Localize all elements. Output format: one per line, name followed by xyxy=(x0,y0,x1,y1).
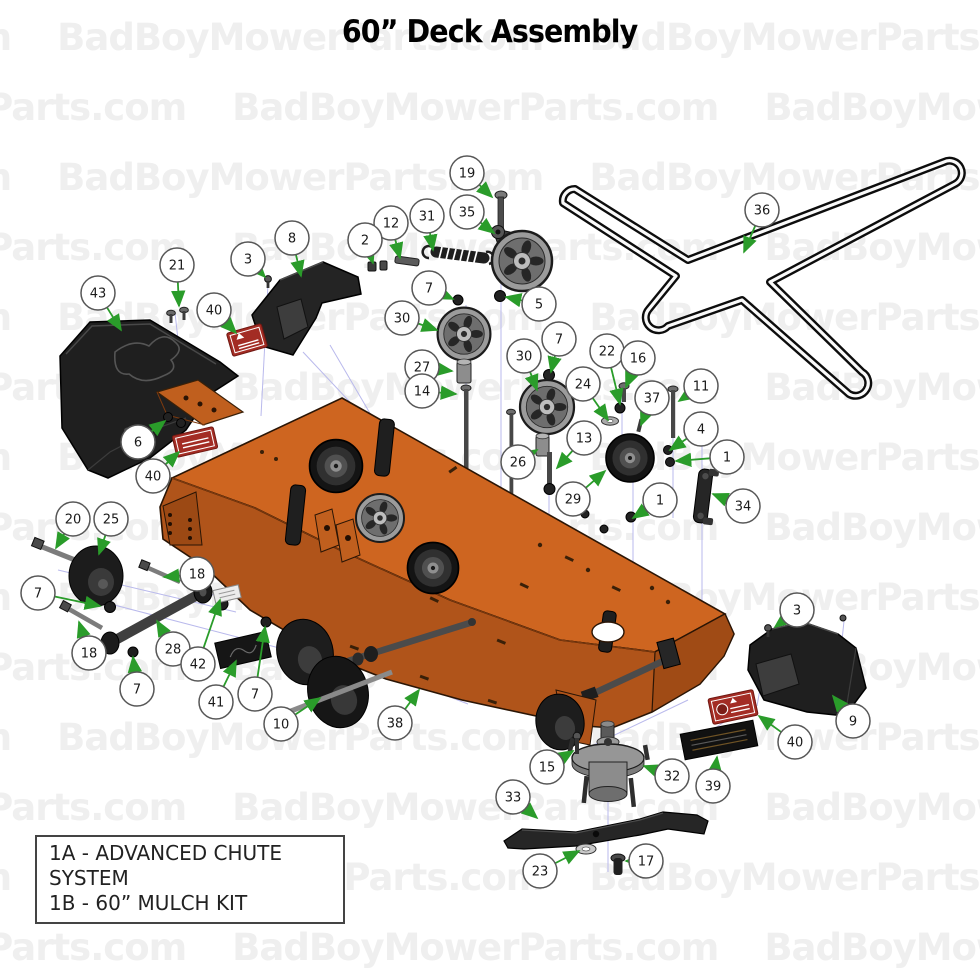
deck-spindle-pulley xyxy=(356,494,404,542)
leader-arrow xyxy=(557,451,573,468)
svg-text:30: 30 xyxy=(394,312,411,327)
svg-text:40: 40 xyxy=(787,736,804,751)
svg-text:37: 37 xyxy=(644,392,661,407)
leader-arrow xyxy=(644,766,656,770)
svg-text:33: 33 xyxy=(505,791,522,806)
screw-21 xyxy=(167,307,189,323)
legend-box: 1A - ADVANCED CHUTE SYSTEM 1B - 60” MULC… xyxy=(35,835,345,924)
leader-arrow xyxy=(439,392,456,394)
svg-text:17: 17 xyxy=(638,855,655,870)
leader-arrow xyxy=(551,356,555,372)
callout-balloon-25: 25 xyxy=(94,502,128,536)
leader-arrow xyxy=(506,297,522,300)
leader-arrow xyxy=(178,282,179,306)
svg-text:23: 23 xyxy=(532,865,549,880)
svg-text:39: 39 xyxy=(705,780,722,795)
callout-balloon-16: 16 xyxy=(621,341,655,375)
svg-text:7: 7 xyxy=(133,683,141,698)
callout-balloon-4: 4 xyxy=(684,412,718,446)
leader-arrow xyxy=(713,494,727,500)
callout-balloon-33: 33 xyxy=(496,780,530,814)
callout-balloon-40: 40 xyxy=(778,725,812,759)
svg-text:28: 28 xyxy=(165,643,182,658)
callout-balloon-7: 7 xyxy=(21,576,55,610)
leader-arrow xyxy=(418,324,437,330)
nut-7 xyxy=(128,647,138,657)
callout-balloon-10: 10 xyxy=(264,707,298,741)
callout-balloon-11: 11 xyxy=(684,369,718,403)
svg-text:18: 18 xyxy=(189,568,206,583)
leader-arrow xyxy=(405,690,419,709)
svg-text:10: 10 xyxy=(273,718,290,733)
deck-spindle-pulley xyxy=(408,543,459,594)
svg-text:13: 13 xyxy=(576,432,593,447)
nut-5 xyxy=(495,291,506,302)
callout-balloon-1: 1 xyxy=(643,483,677,517)
callout-balloon-1: 1 xyxy=(710,440,744,474)
callout-balloon-20: 20 xyxy=(56,502,90,536)
leader-arrow xyxy=(226,322,236,333)
callout-balloon-42: 42 xyxy=(181,647,215,681)
callout-balloon-43: 43 xyxy=(81,276,115,310)
svg-text:7: 7 xyxy=(251,688,259,703)
leader-arrow xyxy=(444,295,453,299)
svg-text:29: 29 xyxy=(565,493,582,508)
callout-balloon-3: 3 xyxy=(231,242,265,276)
svg-text:9: 9 xyxy=(849,715,857,730)
svg-text:38: 38 xyxy=(387,717,404,732)
deck-wheel-25 xyxy=(69,546,123,606)
callout-balloon-6: 6 xyxy=(121,425,155,459)
callout-balloon-35: 35 xyxy=(450,195,484,229)
spindle-blade-group xyxy=(504,721,708,875)
callout-balloon-30: 30 xyxy=(507,339,541,373)
bushing xyxy=(105,602,116,613)
svg-text:11: 11 xyxy=(693,380,710,395)
callout-balloon-17: 17 xyxy=(629,844,663,878)
callout-balloon-7: 7 xyxy=(238,677,272,711)
callout-balloon-9: 9 xyxy=(836,704,870,738)
callout-balloon-3: 3 xyxy=(780,593,814,627)
svg-text:21: 21 xyxy=(169,259,186,274)
svg-text:31: 31 xyxy=(419,210,436,225)
callout-balloon-36: 36 xyxy=(745,193,779,227)
bolt-11 xyxy=(668,386,678,438)
nut-1 xyxy=(666,458,675,467)
decal-39 xyxy=(680,720,758,760)
blade-bolt-17 xyxy=(611,854,625,875)
svg-text:40: 40 xyxy=(145,470,162,485)
bolt-13 xyxy=(544,452,555,495)
leader-arrow xyxy=(759,716,781,732)
callout-balloon-29: 29 xyxy=(556,482,590,516)
callout-balloon-24: 24 xyxy=(566,367,600,401)
leader-arrow xyxy=(157,621,165,634)
svg-text:36: 36 xyxy=(754,204,771,219)
leader-arrow xyxy=(586,471,605,488)
callout-balloon-40: 40 xyxy=(136,459,170,493)
svg-text:25: 25 xyxy=(103,513,120,528)
leader-arrow xyxy=(133,657,135,672)
svg-text:41: 41 xyxy=(208,696,225,711)
callout-balloon-34: 34 xyxy=(726,489,760,523)
leader-arrow xyxy=(79,622,84,637)
nut-7 xyxy=(544,370,555,381)
bolt-14 xyxy=(461,385,471,469)
upper-chute xyxy=(252,262,361,355)
svg-text:16: 16 xyxy=(630,352,647,367)
svg-text:35: 35 xyxy=(459,206,476,221)
legend-item-1a: 1A - ADVANCED CHUTE SYSTEM xyxy=(49,841,343,891)
svg-text:32: 32 xyxy=(664,770,681,785)
callout-balloon-14: 14 xyxy=(405,374,439,408)
callout-balloon-31: 31 xyxy=(410,199,444,233)
svg-text:4: 4 xyxy=(697,423,705,438)
leader-arrow xyxy=(593,398,608,420)
svg-text:3: 3 xyxy=(793,604,801,619)
label-42 xyxy=(213,585,241,604)
nut-22 xyxy=(615,403,625,413)
tension-spring-group xyxy=(368,246,494,271)
leader-arrow xyxy=(676,458,710,461)
leader-arrow xyxy=(479,185,492,197)
callout-balloon-38: 38 xyxy=(378,706,412,740)
callout-balloon-7: 7 xyxy=(120,672,154,706)
svg-text:12: 12 xyxy=(383,217,400,232)
nut-7 xyxy=(453,295,463,305)
svg-text:1: 1 xyxy=(723,451,731,466)
svg-text:7: 7 xyxy=(425,282,433,297)
page-title: 60” Deck Assembly xyxy=(0,14,980,50)
callout-balloon-41: 41 xyxy=(199,685,233,719)
callout-balloon-19: 19 xyxy=(450,156,484,190)
callout-balloon-7: 7 xyxy=(542,322,576,356)
leader-arrow xyxy=(260,271,265,277)
leader-arrow xyxy=(526,808,537,818)
callout-balloon-18: 18 xyxy=(180,557,214,591)
svg-text:24: 24 xyxy=(575,378,592,393)
callout-balloon-13: 13 xyxy=(567,421,601,455)
callout-balloon-15: 15 xyxy=(530,750,564,784)
washer-23 xyxy=(576,844,596,854)
callout-balloon-5: 5 xyxy=(522,287,556,321)
callout-balloon-18: 18 xyxy=(72,636,106,670)
link-12 xyxy=(395,256,420,266)
exploded-view-diagram: 1935311228321434075302714730221624371141… xyxy=(0,0,980,980)
svg-text:18: 18 xyxy=(81,647,98,662)
deck-spindle-pulley xyxy=(310,440,363,493)
callout-balloon-22: 22 xyxy=(590,334,624,368)
callout-balloon-39: 39 xyxy=(696,769,730,803)
mower-blade-33 xyxy=(504,812,708,849)
leader-arrow xyxy=(56,534,64,548)
callout-balloon-21: 21 xyxy=(160,248,194,282)
deck-chute-hole xyxy=(592,622,624,642)
leader-arrow xyxy=(715,757,717,769)
callout-balloon-7: 7 xyxy=(412,271,446,305)
callout-balloon-30: 30 xyxy=(385,301,419,335)
callout-balloon-40: 40 xyxy=(197,293,231,327)
leader-arrow xyxy=(679,396,687,401)
nut-2 xyxy=(368,262,376,271)
callout-balloon-32: 32 xyxy=(655,759,689,793)
svg-text:6: 6 xyxy=(134,436,142,451)
svg-text:26: 26 xyxy=(510,456,527,471)
spacer-27 xyxy=(457,359,471,383)
svg-text:30: 30 xyxy=(516,350,533,365)
svg-text:15: 15 xyxy=(539,761,556,776)
callout-balloon-23: 23 xyxy=(523,854,557,888)
leader-arrow xyxy=(561,751,573,758)
parts-diagram-page: BadBoyMowerParts.comBadBoyMowerParts.com… xyxy=(0,0,980,980)
nut-7 xyxy=(261,617,271,627)
leader-arrow xyxy=(439,369,452,371)
leader-arrow xyxy=(555,851,579,863)
svg-text:22: 22 xyxy=(599,345,616,360)
screw-3 xyxy=(265,276,272,288)
leader-arrow xyxy=(165,452,179,464)
svg-text:7: 7 xyxy=(34,587,42,602)
svg-text:19: 19 xyxy=(459,167,476,182)
leader-arrow xyxy=(395,239,400,258)
legend-item-1b: 1B - 60” MULCH KIT xyxy=(49,891,343,916)
svg-text:14: 14 xyxy=(414,385,431,400)
svg-text:40: 40 xyxy=(206,304,223,319)
svg-text:42: 42 xyxy=(190,658,207,673)
svg-text:1: 1 xyxy=(656,494,664,509)
svg-text:3: 3 xyxy=(244,253,252,268)
leader-arrow xyxy=(204,600,220,648)
bolt-18 xyxy=(139,560,180,582)
svg-text:43: 43 xyxy=(90,287,107,302)
svg-text:8: 8 xyxy=(288,232,296,247)
callout-balloon-2: 2 xyxy=(348,223,382,257)
svg-text:34: 34 xyxy=(735,500,752,515)
svg-text:5: 5 xyxy=(535,298,543,313)
svg-text:20: 20 xyxy=(65,513,82,528)
callout-balloon-26: 26 xyxy=(501,445,535,479)
callout-balloon-37: 37 xyxy=(635,381,669,415)
bracket-34 xyxy=(693,467,720,525)
svg-text:2: 2 xyxy=(361,234,369,249)
callout-balloon-8: 8 xyxy=(275,221,309,255)
svg-text:7: 7 xyxy=(555,333,563,348)
